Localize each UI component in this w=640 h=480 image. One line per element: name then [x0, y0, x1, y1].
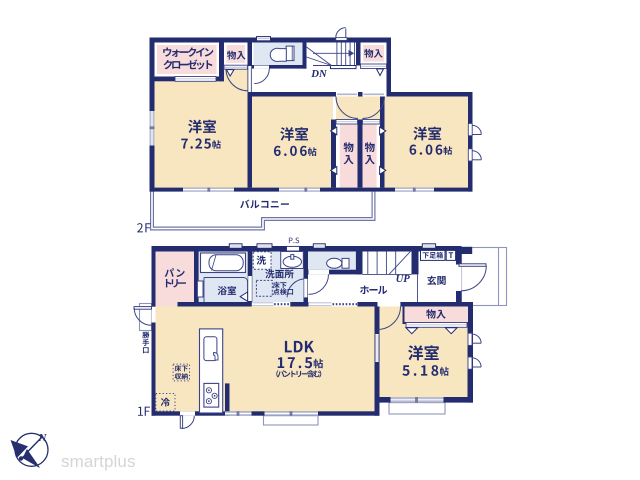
svg-text:DN: DN — [310, 68, 328, 80]
svg-text:UP: UP — [396, 273, 411, 285]
svg-text:N: N — [38, 432, 48, 444]
svg-text:smartplus: smartplus — [61, 452, 136, 471]
